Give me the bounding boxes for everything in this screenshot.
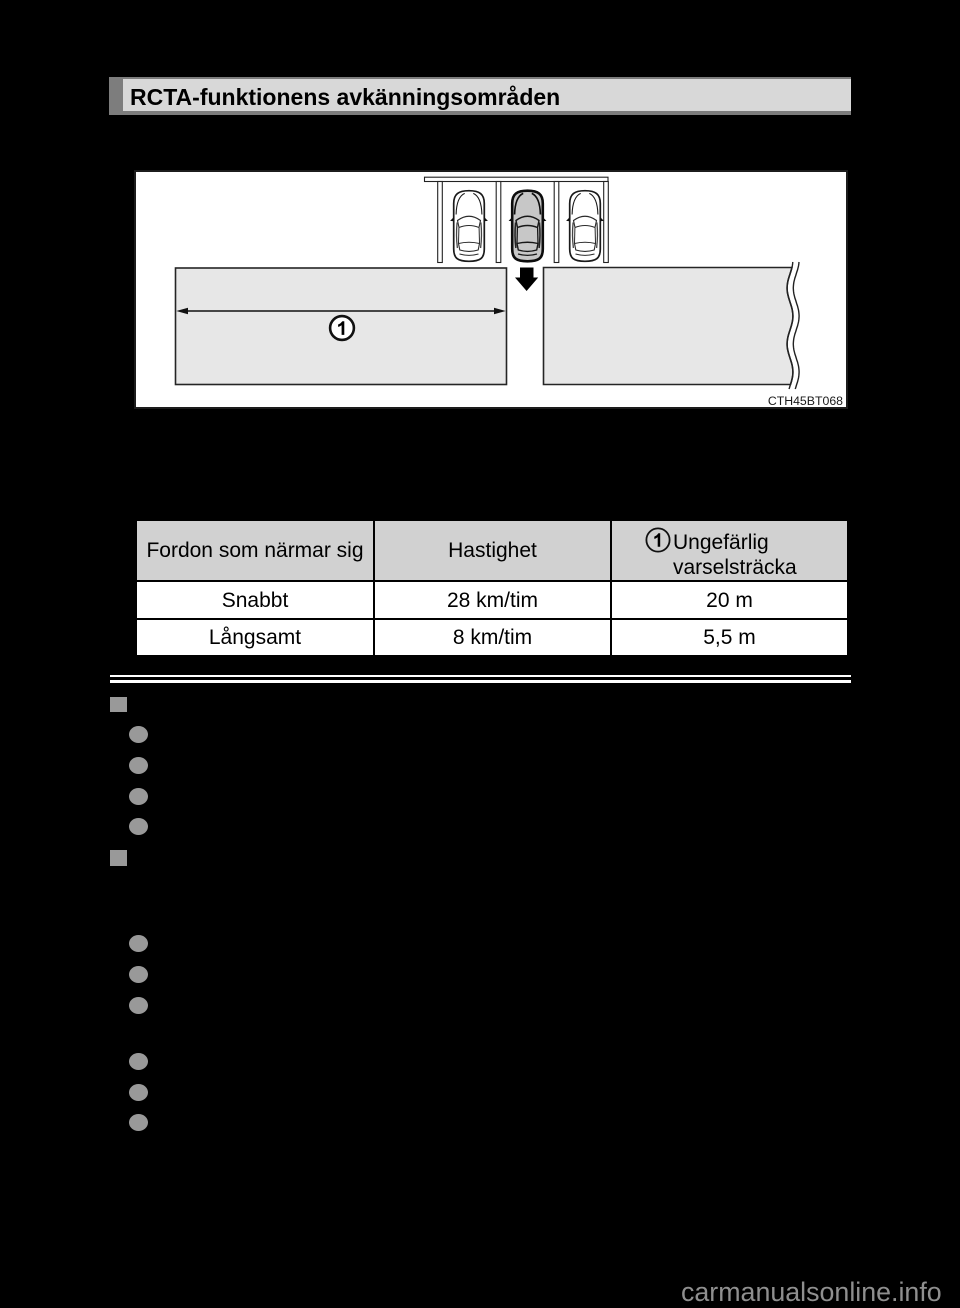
- svg-text:CTH45BT068: CTH45BT068: [768, 394, 843, 407]
